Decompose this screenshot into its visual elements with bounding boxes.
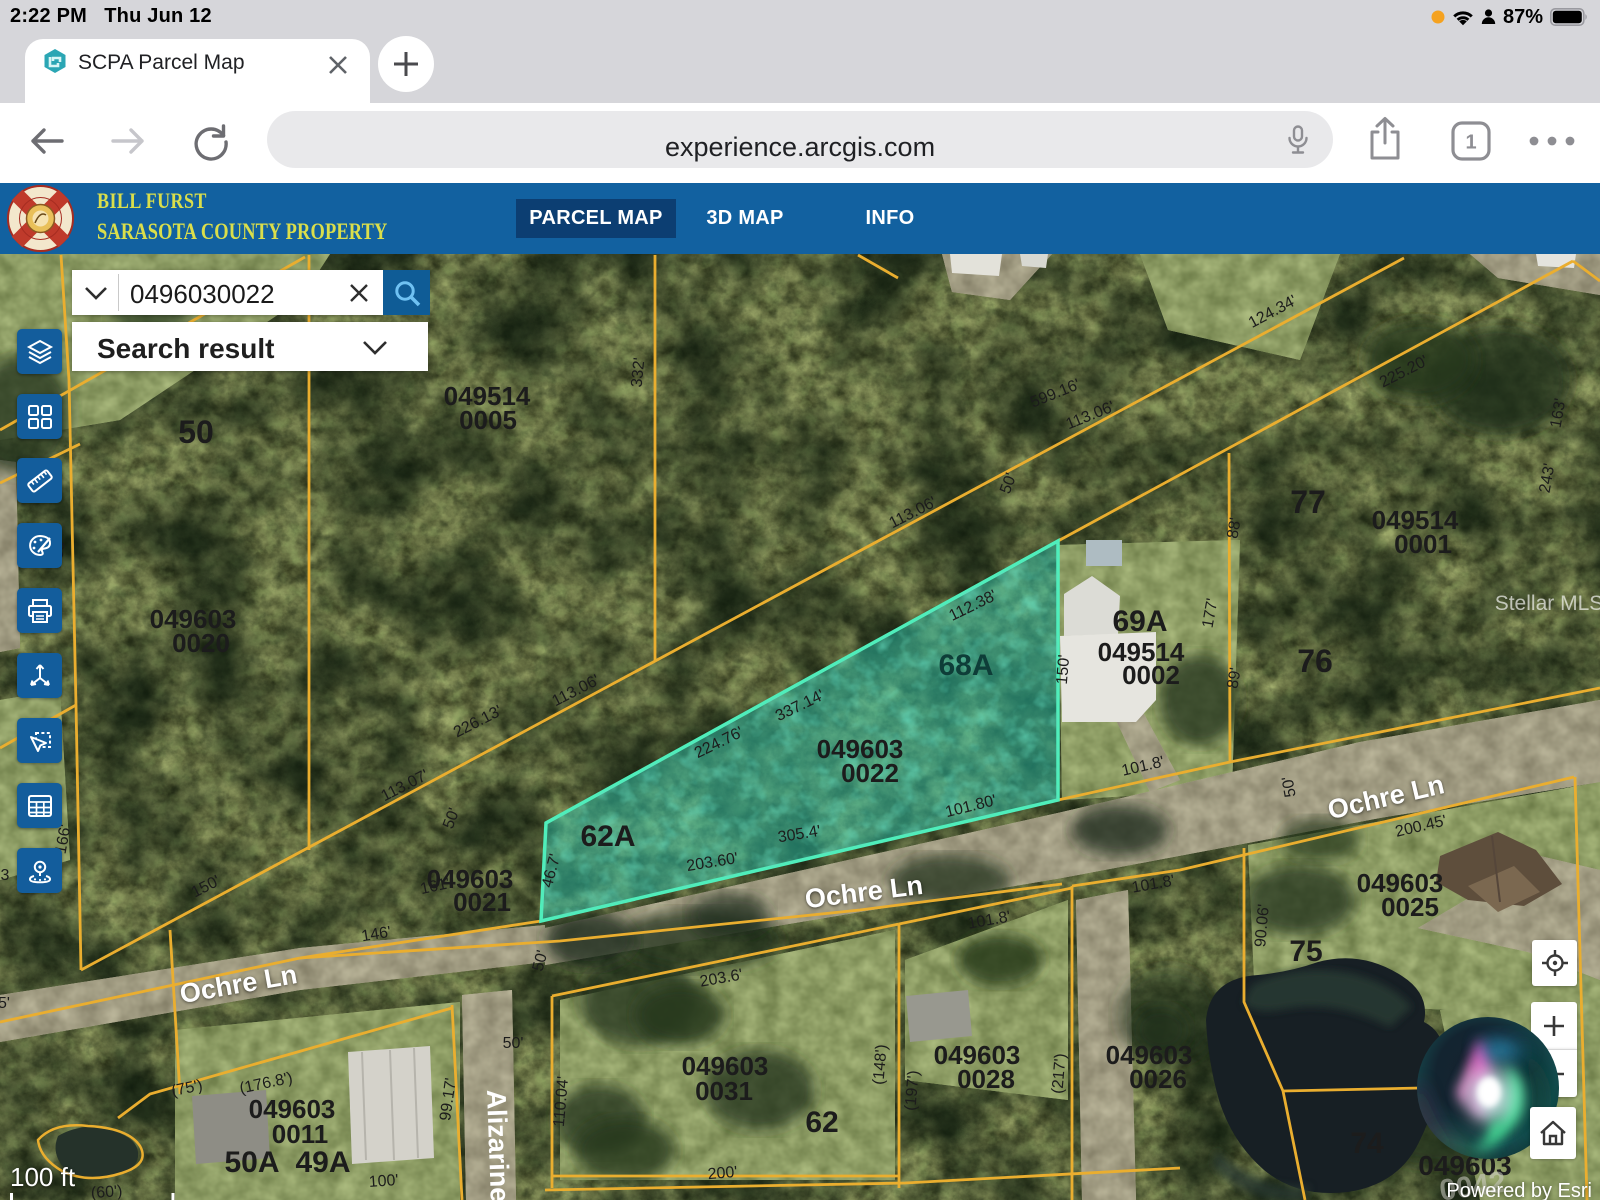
svg-text:68A: 68A xyxy=(938,649,993,682)
svg-text:62: 62 xyxy=(805,1106,838,1139)
svg-text:1: 1 xyxy=(1465,132,1476,154)
svg-text:(148'): (148') xyxy=(870,1044,890,1086)
svg-text:0021: 0021 xyxy=(453,887,511,917)
svg-text:0031: 0031 xyxy=(695,1076,753,1106)
svg-text:Stellar MLS: Stellar MLS xyxy=(1495,592,1600,615)
svg-text:0011: 0011 xyxy=(272,1119,328,1149)
svg-text:0028: 0028 xyxy=(957,1064,1015,1094)
svg-text:0022: 0022 xyxy=(841,758,899,788)
svg-text:76: 76 xyxy=(1297,643,1333,679)
svg-text:75: 75 xyxy=(1289,935,1322,968)
svg-text:5': 5' xyxy=(0,995,10,1012)
svg-text:74: 74 xyxy=(1350,1127,1384,1160)
svg-text:69A: 69A xyxy=(1112,605,1167,638)
svg-text:(197'): (197') xyxy=(902,1070,922,1112)
svg-text:0005: 0005 xyxy=(459,405,517,435)
svg-text:50A: 50A xyxy=(224,1146,279,1179)
svg-text:89': 89' xyxy=(1224,666,1244,689)
svg-text:100': 100' xyxy=(368,1172,399,1191)
svg-text:(217'): (217') xyxy=(1049,1053,1069,1095)
svg-text:Alizarine R: Alizarine R xyxy=(481,1089,516,1200)
svg-text:49A: 49A xyxy=(295,1146,350,1179)
svg-text:0002: 0002 xyxy=(1122,660,1180,690)
svg-text:3: 3 xyxy=(1,867,10,884)
svg-text:62A: 62A xyxy=(580,820,635,853)
svg-text:0001: 0001 xyxy=(1394,529,1452,559)
svg-text:0020: 0020 xyxy=(172,628,230,658)
svg-text:50: 50 xyxy=(178,414,214,450)
svg-text:50': 50' xyxy=(503,1035,524,1052)
svg-text:150': 150' xyxy=(1054,654,1074,685)
svg-text:77: 77 xyxy=(1290,484,1326,520)
svg-text:0026: 0026 xyxy=(1129,1064,1187,1094)
svg-text:88': 88' xyxy=(1224,516,1244,539)
svg-text:50': 50' xyxy=(1279,775,1299,798)
svg-text:0025: 0025 xyxy=(1381,892,1439,922)
svg-text:200': 200' xyxy=(707,1164,738,1184)
svg-text:332': 332' xyxy=(629,357,649,388)
